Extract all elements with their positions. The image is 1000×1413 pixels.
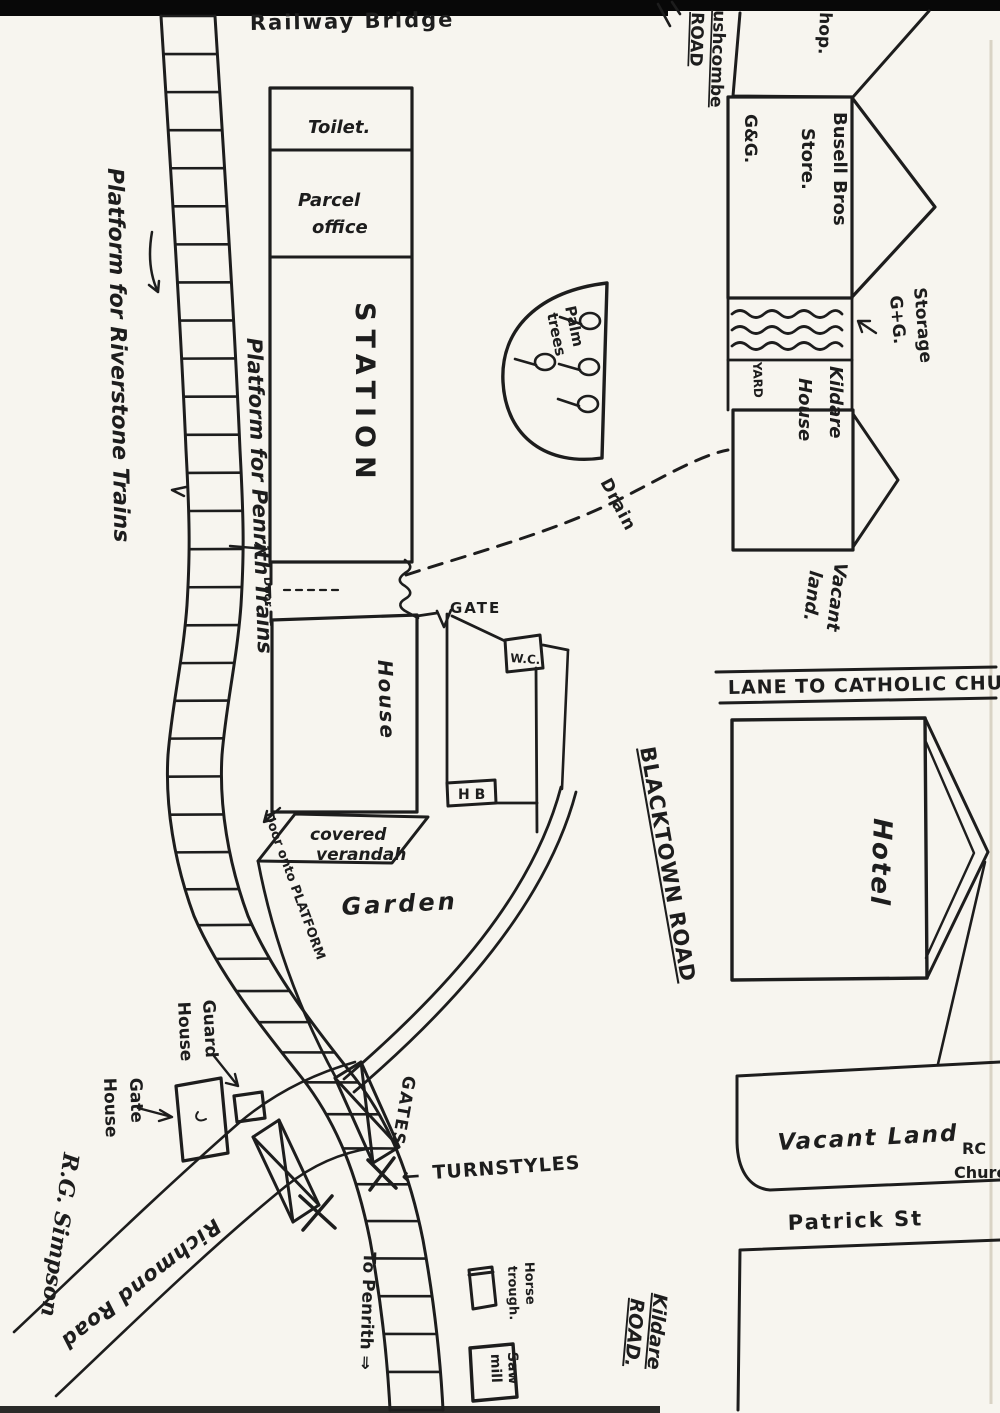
drain-label: Drain xyxy=(596,475,640,535)
level-crossing: Richmond Road GATES Guard House Gate Hou… xyxy=(14,999,581,1396)
storage-label-1: Storage xyxy=(909,287,936,364)
busell-label-1: Busell Bros xyxy=(829,112,850,226)
vacant-land-south-label: Vacant Land xyxy=(777,1121,959,1156)
patrick-street-area: Vacant Land RC Church Patrick St xyxy=(737,1062,1000,1410)
hb-label: H B xyxy=(458,787,485,803)
station-building-outline xyxy=(270,88,412,562)
yard-label: YARD xyxy=(750,361,765,399)
rc-church-label-2: Church xyxy=(954,1163,1000,1182)
gate-house-mark xyxy=(196,1112,206,1120)
drain-dashed-line xyxy=(406,450,728,575)
lane-to-church-label: LANE TO CATHOLIC CHURCH xyxy=(728,671,1000,699)
south-block-outline xyxy=(738,1240,1000,1410)
horse-trough-label-1: Horse xyxy=(521,1262,537,1305)
busell-store-gable xyxy=(853,99,935,296)
horse-trough-label-2: trough. xyxy=(504,1266,521,1321)
platform-penrith-label: Platform for Penrith Trains xyxy=(242,337,277,654)
rc-church-label-1: RC xyxy=(962,1139,986,1158)
bushcombe-road-label-1: ushcombe xyxy=(706,10,729,108)
garden-label: Garden xyxy=(341,887,459,921)
verandah-label-1: covered xyxy=(310,825,387,845)
parcel-office-label-2: office xyxy=(312,217,368,238)
blacktown-road-label: BLACKTOWN ROAD xyxy=(635,745,700,984)
richmond-road-label: Richmond Road xyxy=(56,1214,225,1354)
toilet-label: Toilet. xyxy=(308,117,370,138)
map-canvas: Toilet. Parcel office STATION Door Platf… xyxy=(0,0,1000,1413)
verandah-label-2: verandah xyxy=(316,845,406,865)
platform-riverstone-label: Platform for Riverstone Trains xyxy=(102,168,134,543)
hotel-block: LANE TO CATHOLIC CHURCH Hotel xyxy=(716,667,1000,1064)
gate-v-mark xyxy=(437,610,451,627)
storage-strip xyxy=(728,298,852,360)
gate-house-label-2: House xyxy=(99,1077,121,1137)
gate-house-label-1: Gate xyxy=(125,1077,147,1123)
saw-mill-label-1: Saw xyxy=(504,1352,521,1385)
shop-label: hop. xyxy=(814,12,835,55)
patrick-st-label: Patrick St xyxy=(787,1206,923,1235)
saw-mill-label-2: mill xyxy=(487,1354,504,1384)
track-arrow-icon xyxy=(149,232,159,292)
kildare-road-area: Horse trough. Saw mill Kildare ROAD. xyxy=(469,1262,671,1401)
richmond-road-edge-lower xyxy=(56,1148,372,1396)
wc-label: W.C. xyxy=(510,651,541,667)
busell-label-2: Store. xyxy=(797,128,818,190)
parcel-office-label-1: Parcel xyxy=(298,190,361,211)
vacant-land-east-label-2: land. xyxy=(799,569,826,622)
guard-house-label-2: House xyxy=(173,1001,196,1062)
palm-trees-garden: Palm trees xyxy=(503,283,607,459)
fence-line xyxy=(536,668,537,832)
turnstyles-arrow-icon: ← xyxy=(401,1164,421,1190)
palm-bed-outline xyxy=(503,283,607,459)
hotel-boundary-diagonal xyxy=(938,862,985,1064)
horse-trough-outline xyxy=(469,1267,496,1309)
hand-drawn-station-map: Toilet. Parcel office STATION Door Platf… xyxy=(0,0,1000,1413)
lane-edge-upper xyxy=(716,667,996,672)
lane-edge-lower xyxy=(720,698,996,703)
railway-sleepers xyxy=(161,16,443,1410)
scan-edge-bottom xyxy=(0,1406,660,1413)
to-penrith-label: To Penrith ⇒ xyxy=(355,1252,379,1370)
gg-label: G&G. xyxy=(740,114,760,163)
signature: R.G. Simpson xyxy=(35,1150,84,1318)
hotel-outline xyxy=(732,718,927,980)
station-label: STATION xyxy=(349,302,380,487)
gates-label: GATES xyxy=(387,1074,419,1148)
hotel-label: Hotel xyxy=(864,818,897,908)
house-label: House xyxy=(373,659,400,740)
storage-label-2: G+G. xyxy=(885,295,909,345)
bushcombe-road-area: ushcombe ROAD hop. G&G. Busell Bros Stor… xyxy=(658,2,936,634)
guard-house-arrow-icon xyxy=(214,1056,238,1086)
storage-arrow-icon xyxy=(858,321,876,333)
kildare-house-label-1: Kildare xyxy=(825,366,846,438)
fence-line xyxy=(543,645,568,650)
fence-line xyxy=(452,616,505,641)
fence-line xyxy=(562,650,568,789)
kildare-house-label-2: House xyxy=(794,378,815,441)
guard-house-label-1: Guard xyxy=(198,999,221,1058)
railway-bridge-label: Railway Bridge xyxy=(250,7,455,35)
kildare-house-gable xyxy=(853,414,898,547)
turnstyles-label: TURNSTYLES xyxy=(432,1152,581,1184)
fence-line xyxy=(417,613,437,616)
bushcombe-road-label-2: ROAD xyxy=(685,12,707,67)
kildare-road-label-2: ROAD. xyxy=(620,1298,648,1368)
track-arrowhead-icon xyxy=(172,487,186,496)
fence-squiggle xyxy=(400,560,418,618)
gate-label: GATE xyxy=(450,599,501,617)
